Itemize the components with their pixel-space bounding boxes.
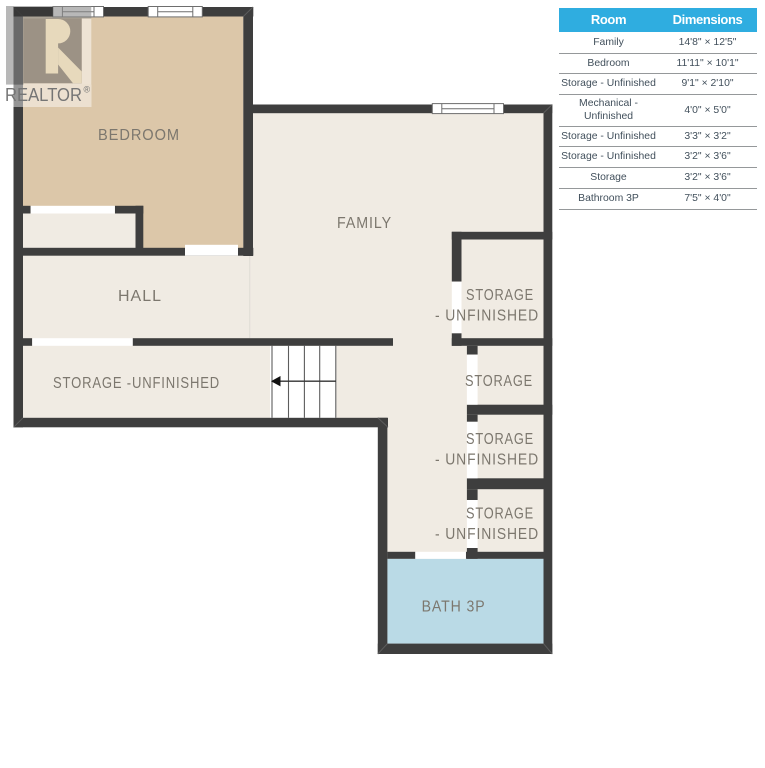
svg-text:FAMILY: FAMILY xyxy=(337,215,392,232)
svg-text:STORAGE: STORAGE xyxy=(466,431,534,448)
svg-text:BEDROOM: BEDROOM xyxy=(98,127,180,144)
svg-text:STORAGE -UNFINISHED: STORAGE -UNFINISHED xyxy=(53,375,220,392)
svg-text:- UNFINISHED: - UNFINISHED xyxy=(435,452,539,469)
svg-text:STORAGE: STORAGE xyxy=(466,506,534,523)
svg-text:®: ® xyxy=(84,85,91,95)
svg-text:BATH 3P: BATH 3P xyxy=(422,598,486,615)
svg-text:STORAGE: STORAGE xyxy=(465,373,533,390)
svg-text:HALL: HALL xyxy=(118,288,162,305)
svg-text:REALTOR: REALTOR xyxy=(5,85,82,105)
svg-text:- UNFINISHED: - UNFINISHED xyxy=(435,526,539,543)
svg-text:- UNFINISHED: - UNFINISHED xyxy=(435,308,539,325)
svg-text:STORAGE: STORAGE xyxy=(466,287,534,304)
